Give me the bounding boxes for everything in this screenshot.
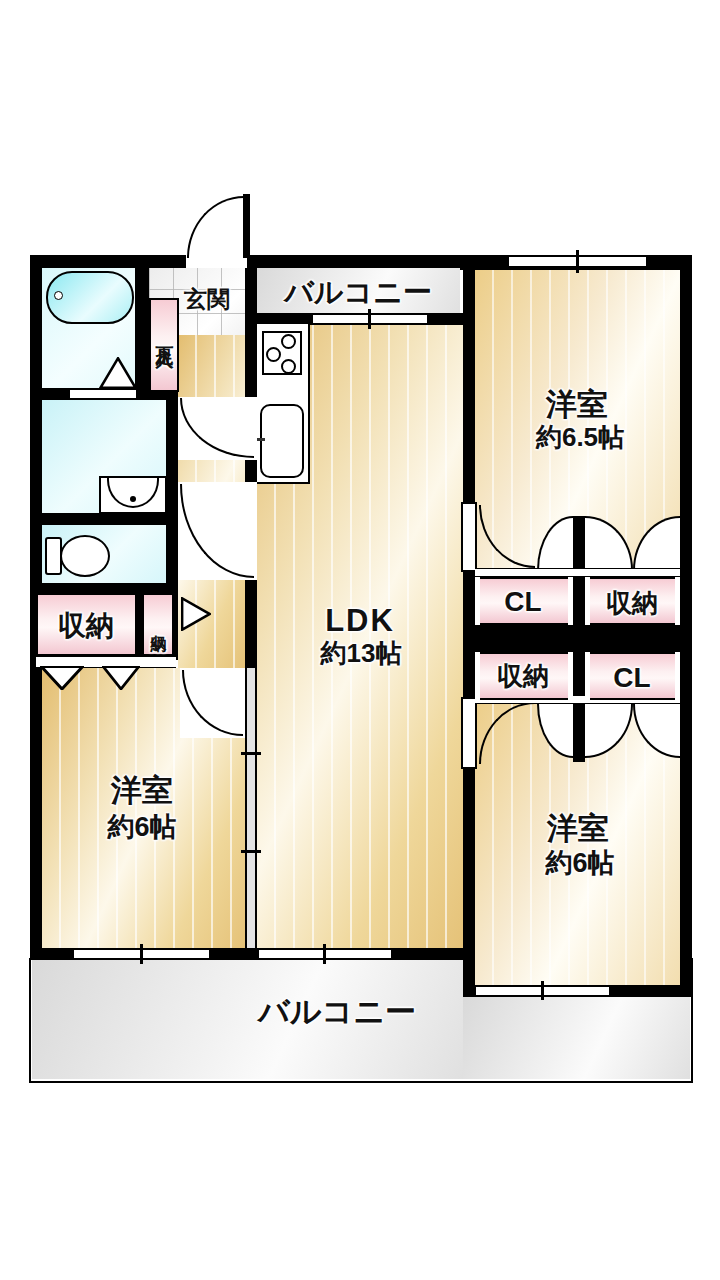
window-ldk-top-tick	[368, 309, 371, 329]
sliding-partition-tick-1	[241, 752, 261, 755]
storage-fold-door-icon-1	[40, 666, 84, 690]
balcony-top-label: バルコニー	[284, 277, 432, 307]
storage-small-box	[142, 593, 174, 656]
sliding-partition	[245, 668, 257, 948]
bedroom-left-name: 洋室	[111, 775, 173, 808]
wall-top-left	[30, 255, 186, 268]
bedroom-right-size: 約6帖	[545, 849, 614, 877]
storage-small-label: 収納	[150, 622, 167, 624]
closet-top-track	[475, 568, 680, 577]
bedroom-65-door-leaf	[461, 502, 477, 572]
storage-fold-door-icon-2	[102, 666, 140, 690]
closet-tl-label: CL	[504, 587, 541, 616]
bedroom-right-door-leaf	[461, 697, 477, 769]
closet-br-label: CL	[613, 663, 650, 692]
bedroom-65-size: 約6.5帖	[536, 424, 624, 451]
toilet-bowl	[60, 535, 110, 577]
bathroom-door-track	[70, 389, 136, 399]
wall-hall-ldk-lower	[245, 580, 257, 668]
wall-closet-mid	[463, 625, 692, 652]
window-ldk-bottom-tick	[323, 944, 326, 964]
vanity-drain	[130, 496, 136, 502]
wall-wash-toilet	[30, 513, 178, 525]
storage-large-label: 収納	[58, 611, 114, 640]
bathroom-fold-door-icon	[99, 357, 137, 389]
closet-bl-label: 収納	[497, 663, 549, 690]
storage-small-fold-door-icon	[181, 597, 211, 631]
entrance-label: 玄関	[184, 287, 230, 311]
window-bedroom-65-tick	[576, 250, 579, 273]
entrance-door-leaf	[243, 194, 250, 258]
bedroom-left-size: 約6帖	[107, 813, 176, 841]
window-bedroom-left-tick	[140, 944, 143, 964]
bedroom-65-name: 洋室	[546, 389, 608, 422]
floor-plan: バルコニー 玄関 下足入れ 洋室 約6.5帖 LDK 約13帖 収納 収納 CL…	[0, 0, 720, 1280]
balcony-bottom-label: バルコニー	[258, 996, 416, 1029]
stove-burner-3	[281, 359, 296, 374]
bedroom-right-name: 洋室	[547, 813, 609, 846]
kitchen-sink	[260, 404, 304, 478]
wall-bath-entrance	[135, 267, 149, 392]
stove-burner-2	[266, 347, 281, 362]
entrance-door-arc	[187, 196, 244, 258]
wall-top-mid	[247, 255, 472, 268]
sliding-partition-tick-2	[241, 850, 261, 853]
ldk-size: 約13帖	[321, 640, 402, 667]
balcony-bottom-floor-right	[463, 997, 690, 1079]
shoe-storage-label: 下足入れ	[155, 333, 174, 358]
ldk-name: LDK	[325, 605, 395, 638]
stove-burner-1	[281, 334, 296, 349]
window-bedroom-right-tick	[541, 981, 544, 1000]
closet-tr-label: 収納	[606, 590, 658, 617]
bathtub-drain	[54, 291, 63, 300]
